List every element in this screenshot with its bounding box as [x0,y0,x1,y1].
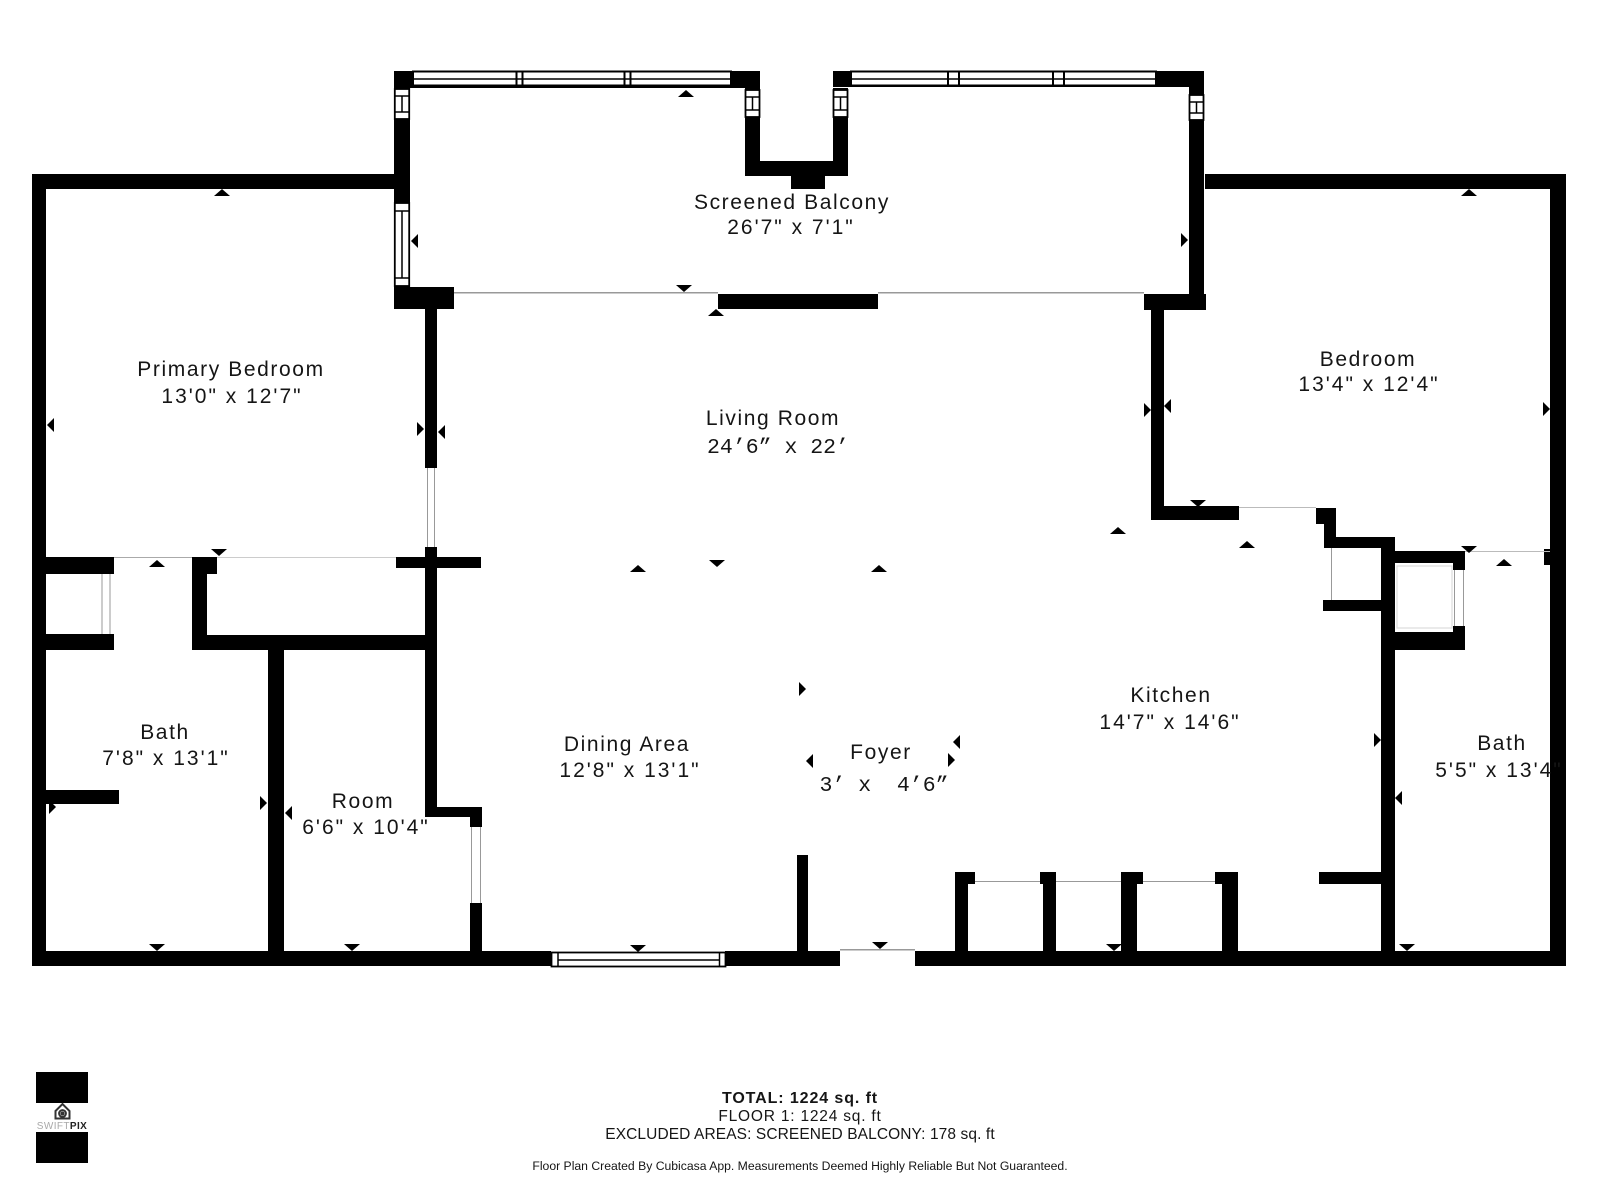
svg-text:Dining Area: Dining Area [564,733,690,756]
svg-text:3’ x 4’6”: 3’ x 4’6” [819,774,948,798]
svg-text:EXCLUDED AREAS: SCREENED BALCO: EXCLUDED AREAS: SCREENED BALCONY: 178 sq… [605,1126,995,1143]
svg-text:TOTAL: 1224 sq. ft: TOTAL: 1224 sq. ft [722,1090,878,1107]
svg-text:13'4" x 12'4": 13'4" x 12'4" [1298,373,1439,396]
svg-text:13'0" x 12'7": 13'0" x 12'7" [161,385,302,408]
svg-text:Floor Plan Created By Cubicasa: Floor Plan Created By Cubicasa App. Meas… [532,1159,1067,1173]
svg-text:Bath: Bath [1477,732,1527,755]
svg-text:24’6” x 22’: 24’6” x 22’ [707,436,849,460]
svg-text:Primary Bedroom: Primary Bedroom [137,358,324,381]
svg-text:14'7" x 14'6": 14'7" x 14'6" [1099,711,1240,734]
svg-text:Room: Room [332,790,394,813]
svg-text:7'8" x 13'1": 7'8" x 13'1" [102,747,230,770]
svg-text:Living Room: Living Room [706,407,840,430]
svg-text:Bedroom: Bedroom [1320,348,1416,371]
svg-text:Bath: Bath [140,721,190,744]
svg-text:6'6" x 10'4": 6'6" x 10'4" [302,816,430,839]
svg-text:26'7" x 7'1": 26'7" x 7'1" [727,216,855,239]
svg-text:Foyer: Foyer [850,741,912,764]
svg-text:Screened Balcony: Screened Balcony [694,191,890,214]
svg-text:Kitchen: Kitchen [1130,684,1211,707]
svg-text:5'5" x 13'4": 5'5" x 13'4" [1435,759,1563,782]
svg-text:12'8" x 13'1": 12'8" x 13'1" [559,759,700,782]
svg-text:FLOOR 1: 1224 sq. ft: FLOOR 1: 1224 sq. ft [718,1108,881,1125]
svg-text:SWIFTPIX: SWIFTPIX [37,1121,87,1132]
